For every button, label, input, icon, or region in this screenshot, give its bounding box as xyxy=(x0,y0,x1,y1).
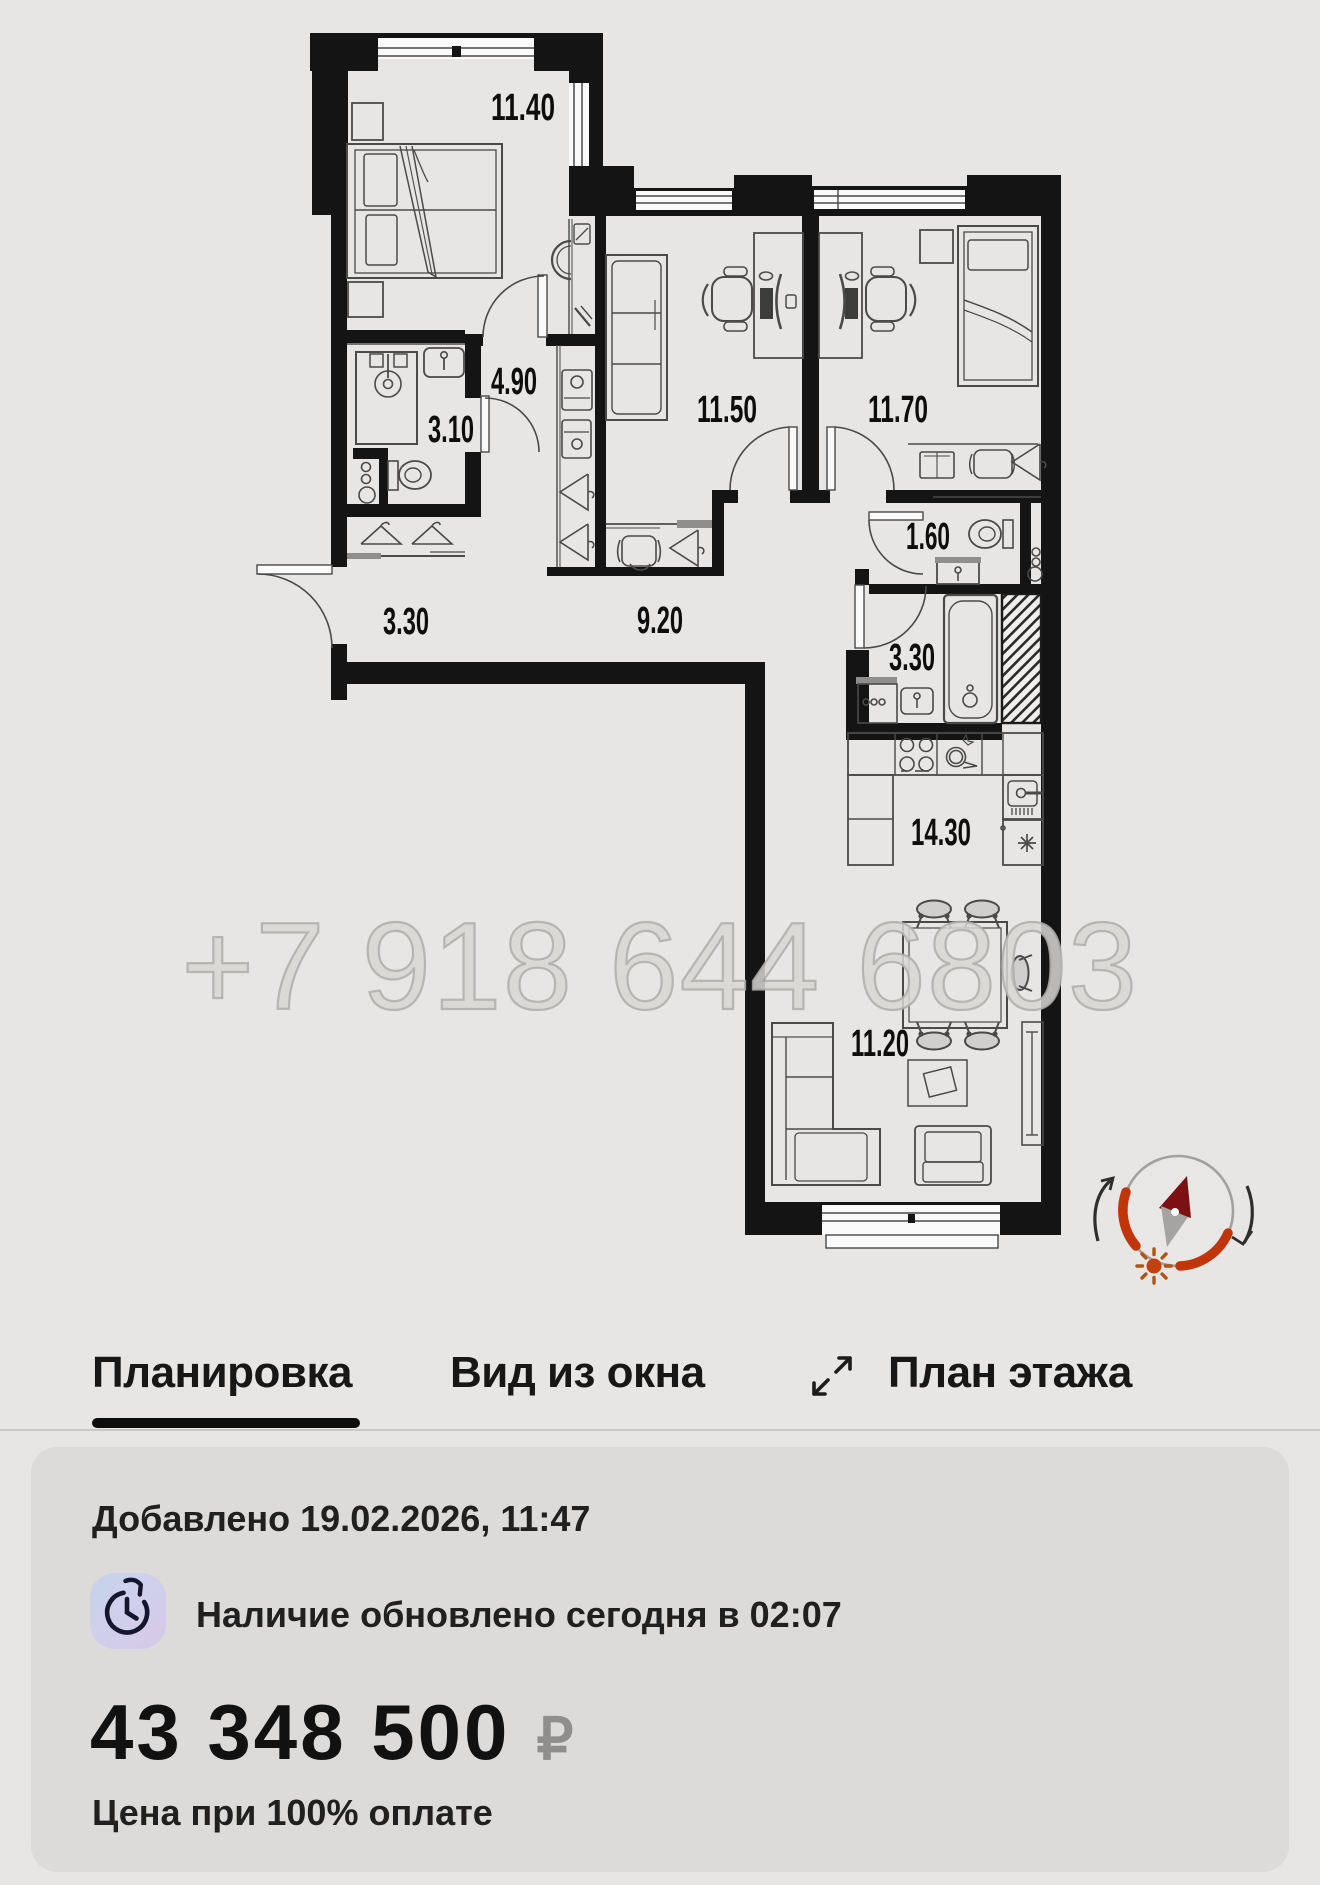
svg-text:11.40: 11.40 xyxy=(491,87,555,129)
svg-text:11.70: 11.70 xyxy=(868,389,928,431)
svg-text:14.30: 14.30 xyxy=(911,812,971,854)
svg-text:+7 918 644 6803: +7 918 644 6803 xyxy=(182,898,1139,1036)
svg-text:3.30: 3.30 xyxy=(889,637,935,679)
svg-text:1.60: 1.60 xyxy=(906,516,950,558)
svg-text:9.20: 9.20 xyxy=(637,600,683,642)
svg-text:3.30: 3.30 xyxy=(383,601,429,643)
svg-text:3.10: 3.10 xyxy=(428,409,474,451)
svg-text:4.90: 4.90 xyxy=(491,361,537,403)
svg-text:11.50: 11.50 xyxy=(697,389,757,431)
